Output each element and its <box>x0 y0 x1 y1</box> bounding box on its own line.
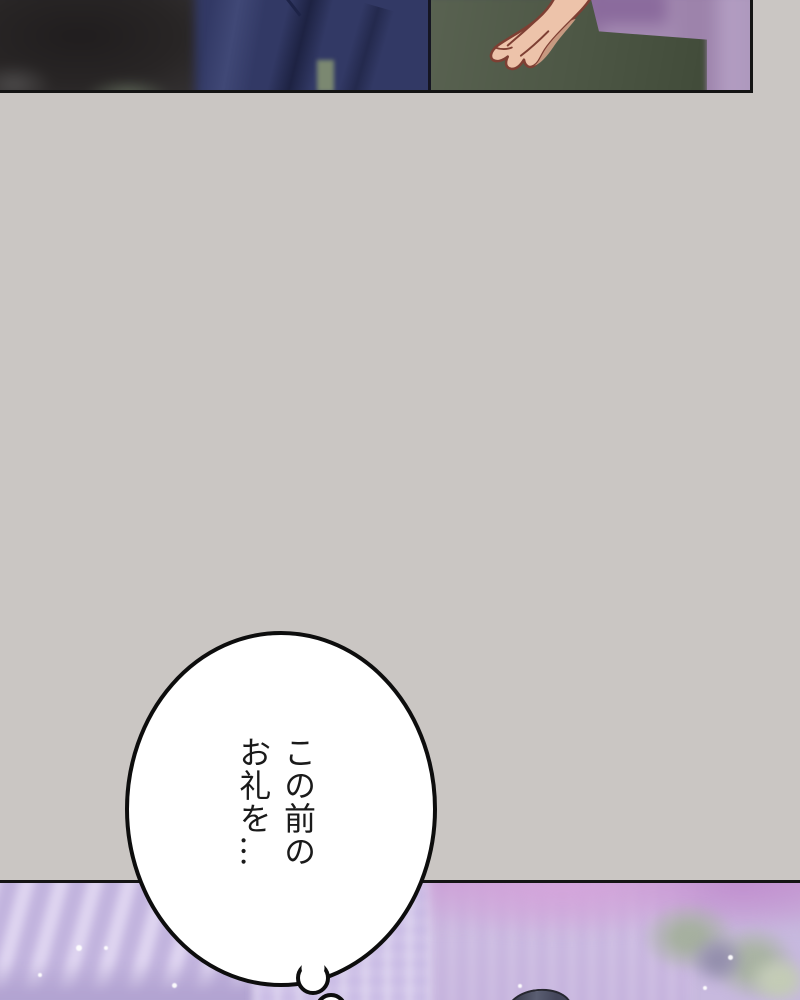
comic-page: この前の お礼を… <box>0 0 800 1000</box>
sparkle <box>38 973 42 977</box>
sparkle <box>518 984 522 988</box>
hand-illustration <box>450 0 602 93</box>
suit-highlight <box>193 0 266 93</box>
sparkle <box>104 946 108 950</box>
suit-torso <box>160 0 431 90</box>
foreground-blur <box>0 0 195 93</box>
tree-highlight <box>733 943 800 1000</box>
bottom-panel <box>0 880 800 1000</box>
suit-fold-shadow <box>333 3 394 93</box>
background-gap <box>317 60 334 92</box>
panel-gutter <box>0 93 800 880</box>
top-panel <box>0 0 753 93</box>
sparkle <box>703 986 707 990</box>
sparkle <box>728 955 733 960</box>
sparkle <box>236 928 241 933</box>
bubble-text-line-2: お礼を… <box>230 736 275 892</box>
sparkle <box>76 945 82 951</box>
sparkle <box>172 983 177 988</box>
bubble-text: この前の お礼を… <box>228 736 320 892</box>
bubble-text-line-1: この前の <box>275 736 320 892</box>
